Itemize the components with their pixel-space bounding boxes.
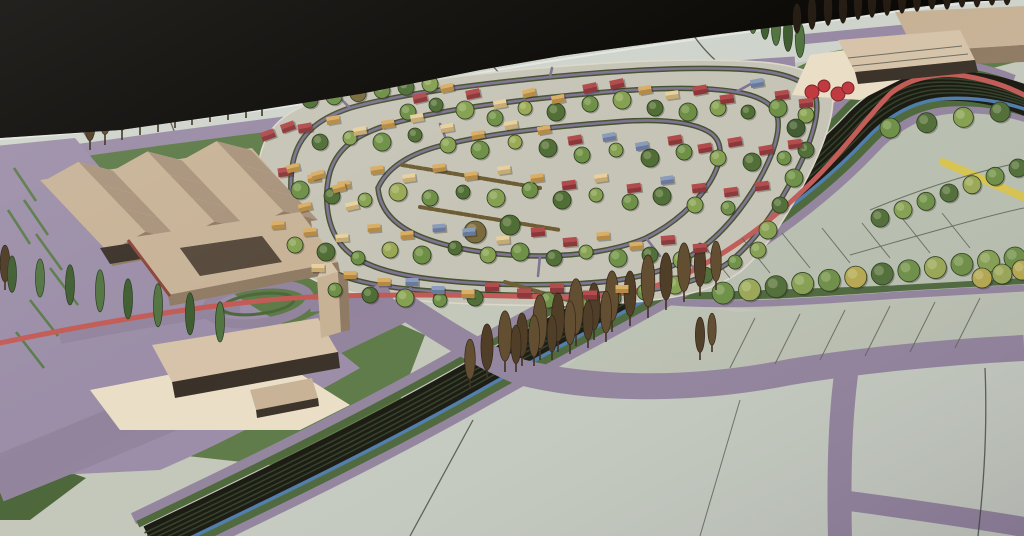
house <box>464 171 480 182</box>
tree-highlight <box>745 155 753 163</box>
tree-highlight <box>319 245 327 253</box>
tree-highlight <box>942 186 950 194</box>
tree-highlight <box>993 105 1002 114</box>
poplar-tree <box>641 255 655 307</box>
house <box>583 291 599 302</box>
poplar-tree <box>498 311 511 361</box>
tree-highlight <box>541 141 549 149</box>
house-roof-dark <box>583 295 597 300</box>
tree-highlight <box>787 171 795 179</box>
cypress-tree <box>154 284 163 327</box>
tree-highlight <box>503 218 512 227</box>
tree-highlight <box>874 266 884 276</box>
tree-highlight <box>520 103 526 109</box>
cypress-tree <box>66 265 75 305</box>
tree-highlight <box>289 239 296 246</box>
tree-highlight <box>450 243 456 249</box>
house-roof-light <box>378 278 391 282</box>
tree-highlight <box>326 190 333 197</box>
architectural-model-scene <box>0 0 1024 536</box>
cypress-tree <box>124 279 133 319</box>
house <box>661 235 677 247</box>
house <box>629 241 644 252</box>
house <box>691 182 708 195</box>
house <box>402 173 418 184</box>
house <box>660 175 676 186</box>
house <box>400 230 415 241</box>
poplar-tree <box>583 301 593 340</box>
house-roof-dark <box>550 288 564 293</box>
tree-highlight <box>615 93 623 101</box>
house <box>432 286 447 296</box>
tree-highlight <box>548 252 555 259</box>
house <box>370 165 386 176</box>
house <box>596 231 611 242</box>
tree-highlight <box>730 257 736 263</box>
tree-highlight <box>524 184 531 191</box>
house-roof-dark <box>485 287 499 292</box>
house <box>693 243 709 255</box>
tree-highlight <box>988 170 996 178</box>
poplar-tree <box>695 317 704 352</box>
tree-highlight <box>1015 263 1024 272</box>
house <box>616 285 631 295</box>
tree-highlight <box>330 285 336 291</box>
poplar-tree <box>511 325 521 364</box>
tree-highlight <box>473 143 481 151</box>
tree-highlight <box>424 192 431 199</box>
tree-highlight <box>883 121 892 130</box>
cypress-tree <box>36 259 45 297</box>
tree-highlight <box>681 105 689 113</box>
tree-highlight <box>510 137 516 143</box>
tree-highlight <box>689 199 696 206</box>
tree-highlight <box>1011 161 1019 169</box>
house-roof-light <box>485 283 499 288</box>
house <box>799 98 816 110</box>
tree-highlight <box>415 248 423 256</box>
tree-highlight <box>611 145 617 151</box>
house <box>406 278 421 288</box>
tree-highlight <box>643 151 651 159</box>
house-roof-dark <box>406 282 419 286</box>
house <box>496 235 511 246</box>
tree-highlight <box>314 136 321 143</box>
tree-highlight <box>345 133 351 139</box>
house <box>594 173 610 184</box>
tree-highlight <box>489 112 496 119</box>
house <box>626 182 643 195</box>
tree-highlight <box>965 178 973 186</box>
house-roof-dark <box>462 294 475 298</box>
house <box>530 173 546 184</box>
tree-highlight <box>779 153 785 159</box>
house <box>462 227 477 238</box>
house <box>312 264 327 274</box>
tree-highlight <box>489 191 497 199</box>
tree-highlight <box>761 223 769 231</box>
tree-highlight <box>927 259 937 269</box>
house <box>303 227 318 238</box>
tree-highlight <box>919 195 927 203</box>
tree-highlight <box>584 98 591 105</box>
red-sculpture-tree <box>805 85 819 99</box>
tree-highlight <box>980 253 990 263</box>
house <box>485 283 501 294</box>
tree-highlight <box>353 253 359 259</box>
tree-highlight <box>789 121 797 129</box>
tree-highlight <box>364 289 371 296</box>
poplar-tree <box>481 324 493 370</box>
house <box>754 180 771 193</box>
tree-highlight <box>513 245 521 253</box>
tree-highlight <box>549 105 557 113</box>
house-roof-dark <box>432 290 445 294</box>
cypress-tree <box>8 256 17 292</box>
tree-highlight <box>655 189 663 197</box>
tree-highlight <box>591 190 597 196</box>
tree-highlight <box>391 185 399 193</box>
tree-highlight <box>482 249 489 256</box>
house <box>665 90 681 101</box>
tree-highlight <box>723 203 729 209</box>
cypress-tree <box>186 293 195 335</box>
house-roof-light <box>517 289 531 294</box>
tree-highlight <box>896 203 904 211</box>
poplar-tree <box>601 291 612 333</box>
tree-highlight <box>741 282 751 292</box>
tree-highlight <box>873 211 881 219</box>
model-photograph <box>0 0 1024 536</box>
tree-highlight <box>752 244 759 251</box>
poplar-tree <box>529 315 540 357</box>
tree-highlight <box>410 130 416 136</box>
house <box>271 220 286 231</box>
house-roof-dark <box>517 293 531 298</box>
tree-highlight <box>712 102 719 109</box>
house-roof-dark <box>378 282 391 286</box>
red-sculpture-tree <box>842 82 854 94</box>
tree-highlight <box>956 110 965 119</box>
tree-highlight <box>774 199 781 206</box>
tree-highlight <box>649 102 656 109</box>
tree-highlight <box>431 100 437 106</box>
tree-highlight <box>581 247 587 253</box>
poplar-tree <box>711 241 722 281</box>
tree-highlight <box>402 106 409 113</box>
house <box>561 179 578 192</box>
house <box>787 138 804 151</box>
house-roof-light <box>406 278 419 282</box>
poplar-tree <box>660 253 672 300</box>
house <box>432 223 447 234</box>
tree-highlight <box>794 275 804 285</box>
tree-highlight <box>442 139 449 146</box>
tree-highlight <box>847 269 857 279</box>
house <box>563 237 579 249</box>
poplar-tree <box>708 313 716 345</box>
house <box>723 186 740 199</box>
poplar-tree <box>678 243 691 292</box>
house <box>344 271 359 281</box>
tree-highlight <box>1007 250 1017 260</box>
tree-highlight <box>624 196 631 203</box>
house <box>335 233 350 244</box>
tree-highlight <box>293 183 301 191</box>
tree-highlight <box>611 251 619 259</box>
house <box>497 165 513 176</box>
house <box>774 89 791 102</box>
tree-highlight <box>398 291 406 299</box>
house-roof-light <box>312 264 325 268</box>
tree-highlight <box>555 193 563 201</box>
tree-highlight <box>384 244 391 251</box>
house-roof-light <box>432 286 445 290</box>
house-roof-dark <box>344 275 357 279</box>
house <box>531 227 547 239</box>
house-roof-light <box>583 291 597 296</box>
tree-highlight <box>360 195 366 201</box>
tree-highlight <box>821 272 831 282</box>
house-roof-dark <box>312 268 325 272</box>
house <box>432 163 448 174</box>
house <box>719 93 736 106</box>
poplar-tree <box>564 301 575 345</box>
poplar-tree <box>465 339 476 379</box>
red-sculpture-tree <box>818 80 830 92</box>
tree-highlight <box>743 107 749 113</box>
tree-highlight <box>576 149 583 156</box>
poplar-tree <box>547 315 557 352</box>
tree-highlight <box>458 103 466 111</box>
house-roof-light <box>616 285 629 289</box>
house <box>367 223 382 234</box>
tree-highlight <box>919 115 928 124</box>
house-roof-light <box>550 284 564 289</box>
tree-highlight <box>901 262 911 272</box>
tree-highlight <box>975 271 984 280</box>
tree-highlight <box>458 187 464 193</box>
tree-highlight <box>800 109 807 116</box>
tree-highlight <box>712 152 719 159</box>
skyline-cypress-silhouette <box>793 4 801 34</box>
house <box>378 278 393 288</box>
house <box>550 284 566 295</box>
tree-highlight <box>771 101 779 109</box>
tree-highlight <box>678 146 685 153</box>
house-roof-dark <box>616 289 629 293</box>
cypress-tree <box>216 302 225 342</box>
tree-highlight <box>768 278 778 288</box>
house <box>517 289 533 300</box>
cypress-tree <box>96 270 105 312</box>
tree-highlight <box>435 295 441 301</box>
house <box>462 290 477 300</box>
tree-highlight <box>995 267 1004 276</box>
house-roof-light <box>462 290 475 294</box>
tree-highlight <box>375 135 383 143</box>
tree-highlight <box>954 256 964 266</box>
house-roof-light <box>344 271 357 275</box>
